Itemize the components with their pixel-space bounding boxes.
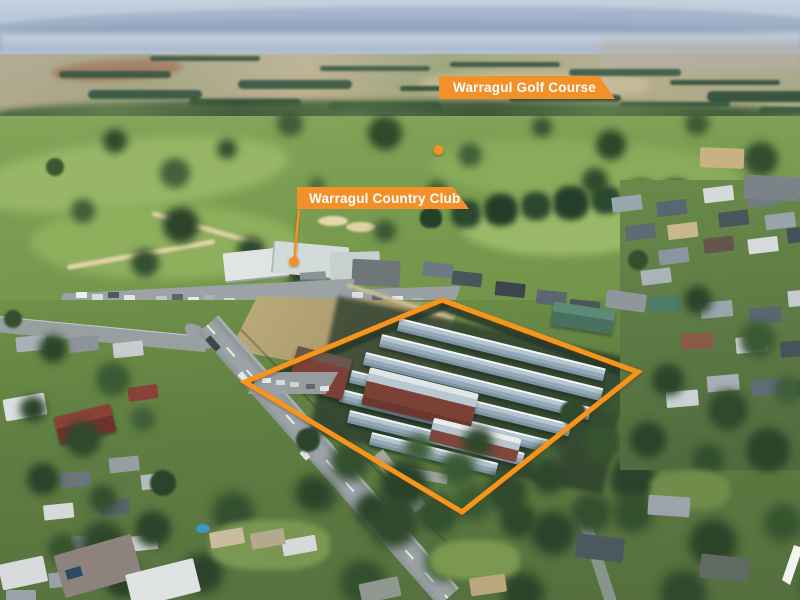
left-tree-cluster (4, 310, 22, 328)
house-roofs (451, 270, 482, 287)
golf-course-label-text: Warragul Golf Course (453, 80, 596, 95)
school-parked-cars (262, 378, 271, 383)
right-residential-ground (620, 180, 800, 470)
sand-bunker (318, 216, 348, 226)
house-roof (647, 495, 690, 518)
hedgerows (150, 56, 260, 61)
lawn-patch (430, 540, 520, 580)
distant-field-mauve (600, 40, 800, 70)
boundary-right-trees (560, 400, 586, 426)
aerial-photo: Warragul Golf Course Warragul Country Cl… (0, 0, 800, 600)
grey-shed (743, 175, 800, 202)
house-roofs (15, 334, 46, 352)
house-roof (699, 553, 751, 582)
parked-cars (76, 292, 87, 298)
clubhouse-dark-wing (351, 259, 400, 287)
parked-cars (352, 292, 363, 298)
bottom-tree-cluster (150, 470, 176, 496)
right-tree-cluster (628, 250, 648, 270)
school-front-trees (296, 428, 320, 452)
golf-course-label: Warragul Golf Course (439, 76, 615, 99)
golf-tree-cluster (46, 158, 64, 176)
swimming-pool (196, 524, 210, 533)
tan-building (700, 147, 745, 169)
school-parking (248, 372, 339, 394)
windbreak-tree-row (420, 208, 442, 228)
house-roofs (647, 295, 680, 314)
house-roof (6, 590, 36, 600)
country-club-label-text: Warragul Country Club (309, 191, 460, 206)
country-club-label: Warragul Country Club (297, 187, 469, 209)
